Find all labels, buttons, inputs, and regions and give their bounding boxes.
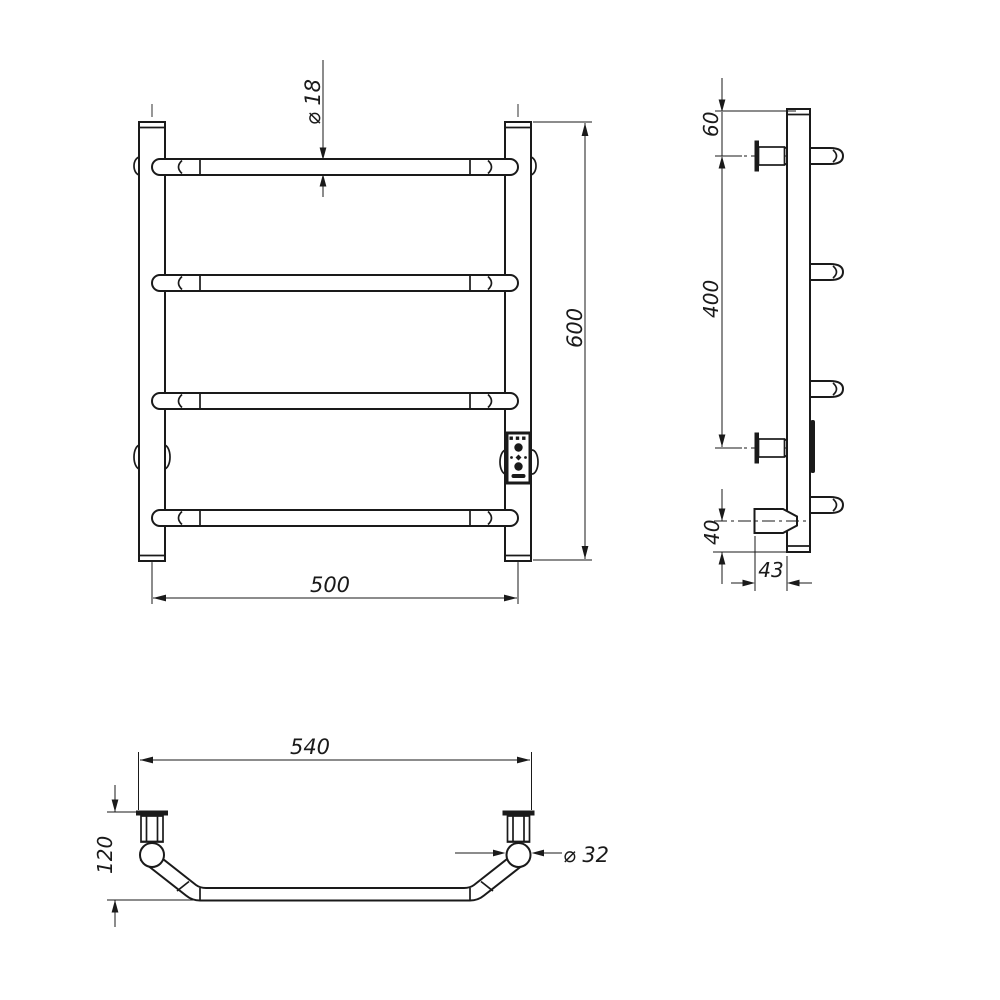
- dim-bracket-spacing: 400: [699, 157, 742, 448]
- timer-slot: [512, 474, 526, 478]
- front-view: ⌀ 18 600 500: [134, 60, 592, 604]
- side-view: 60 400 40 43: [699, 78, 843, 591]
- dim-label-bottom-offset: 40: [700, 520, 724, 545]
- dim-label-wall-to-post: 43: [758, 558, 783, 582]
- indicator-led: [516, 437, 519, 440]
- power-button: [514, 443, 522, 451]
- control-panel-side-profile: [811, 420, 816, 473]
- dim-overall-height: 600: [533, 122, 592, 560]
- dim-label-overall-height: 600: [563, 308, 587, 348]
- technical-drawing-page: ⌀ 18 600 500: [0, 0, 1000, 1000]
- plan-right-bracket: [503, 811, 535, 843]
- dim-post-diameter: ⌀ 32: [455, 843, 609, 867]
- dim-label-bracket-spacing: 400: [699, 280, 723, 318]
- dim-label-depth: 120: [93, 836, 117, 874]
- towel-bar-2: [152, 275, 518, 291]
- mode-button: [514, 462, 522, 470]
- indicator-led: [510, 437, 513, 440]
- dim-label-bar-diameter: ⌀ 18: [301, 79, 325, 125]
- towel-bar-3: [152, 393, 518, 409]
- indicator-led: [522, 437, 525, 440]
- plan-left-bracket: [136, 811, 168, 843]
- dim-label-rail-width: 500: [310, 573, 350, 597]
- top-view: 540 120 ⌀ 32: [93, 735, 609, 927]
- towel-bar-4: [152, 510, 518, 526]
- dim-bar-diameter: ⌀ 18: [301, 60, 326, 197]
- dim-label-top-to-first-bar: 60: [699, 112, 723, 137]
- side-post: [787, 109, 810, 552]
- towel-bar-1: [152, 159, 518, 175]
- dim-overall-width: 540: [139, 735, 532, 810]
- towel-rail-drawing: ⌀ 18 600 500: [0, 0, 1000, 1000]
- indicator-dot: [524, 456, 527, 459]
- right-post: [505, 122, 531, 561]
- dim-rail-width: 500: [152, 563, 518, 604]
- plan-right-post-section: [507, 843, 531, 867]
- dim-label-post-diameter: ⌀ 32: [563, 843, 609, 867]
- dim-label-overall-width: 540: [290, 735, 330, 759]
- left-post: [139, 122, 165, 561]
- control-panel: [507, 433, 530, 483]
- indicator-dot: [510, 456, 513, 459]
- plan-left-post-section: [140, 843, 164, 867]
